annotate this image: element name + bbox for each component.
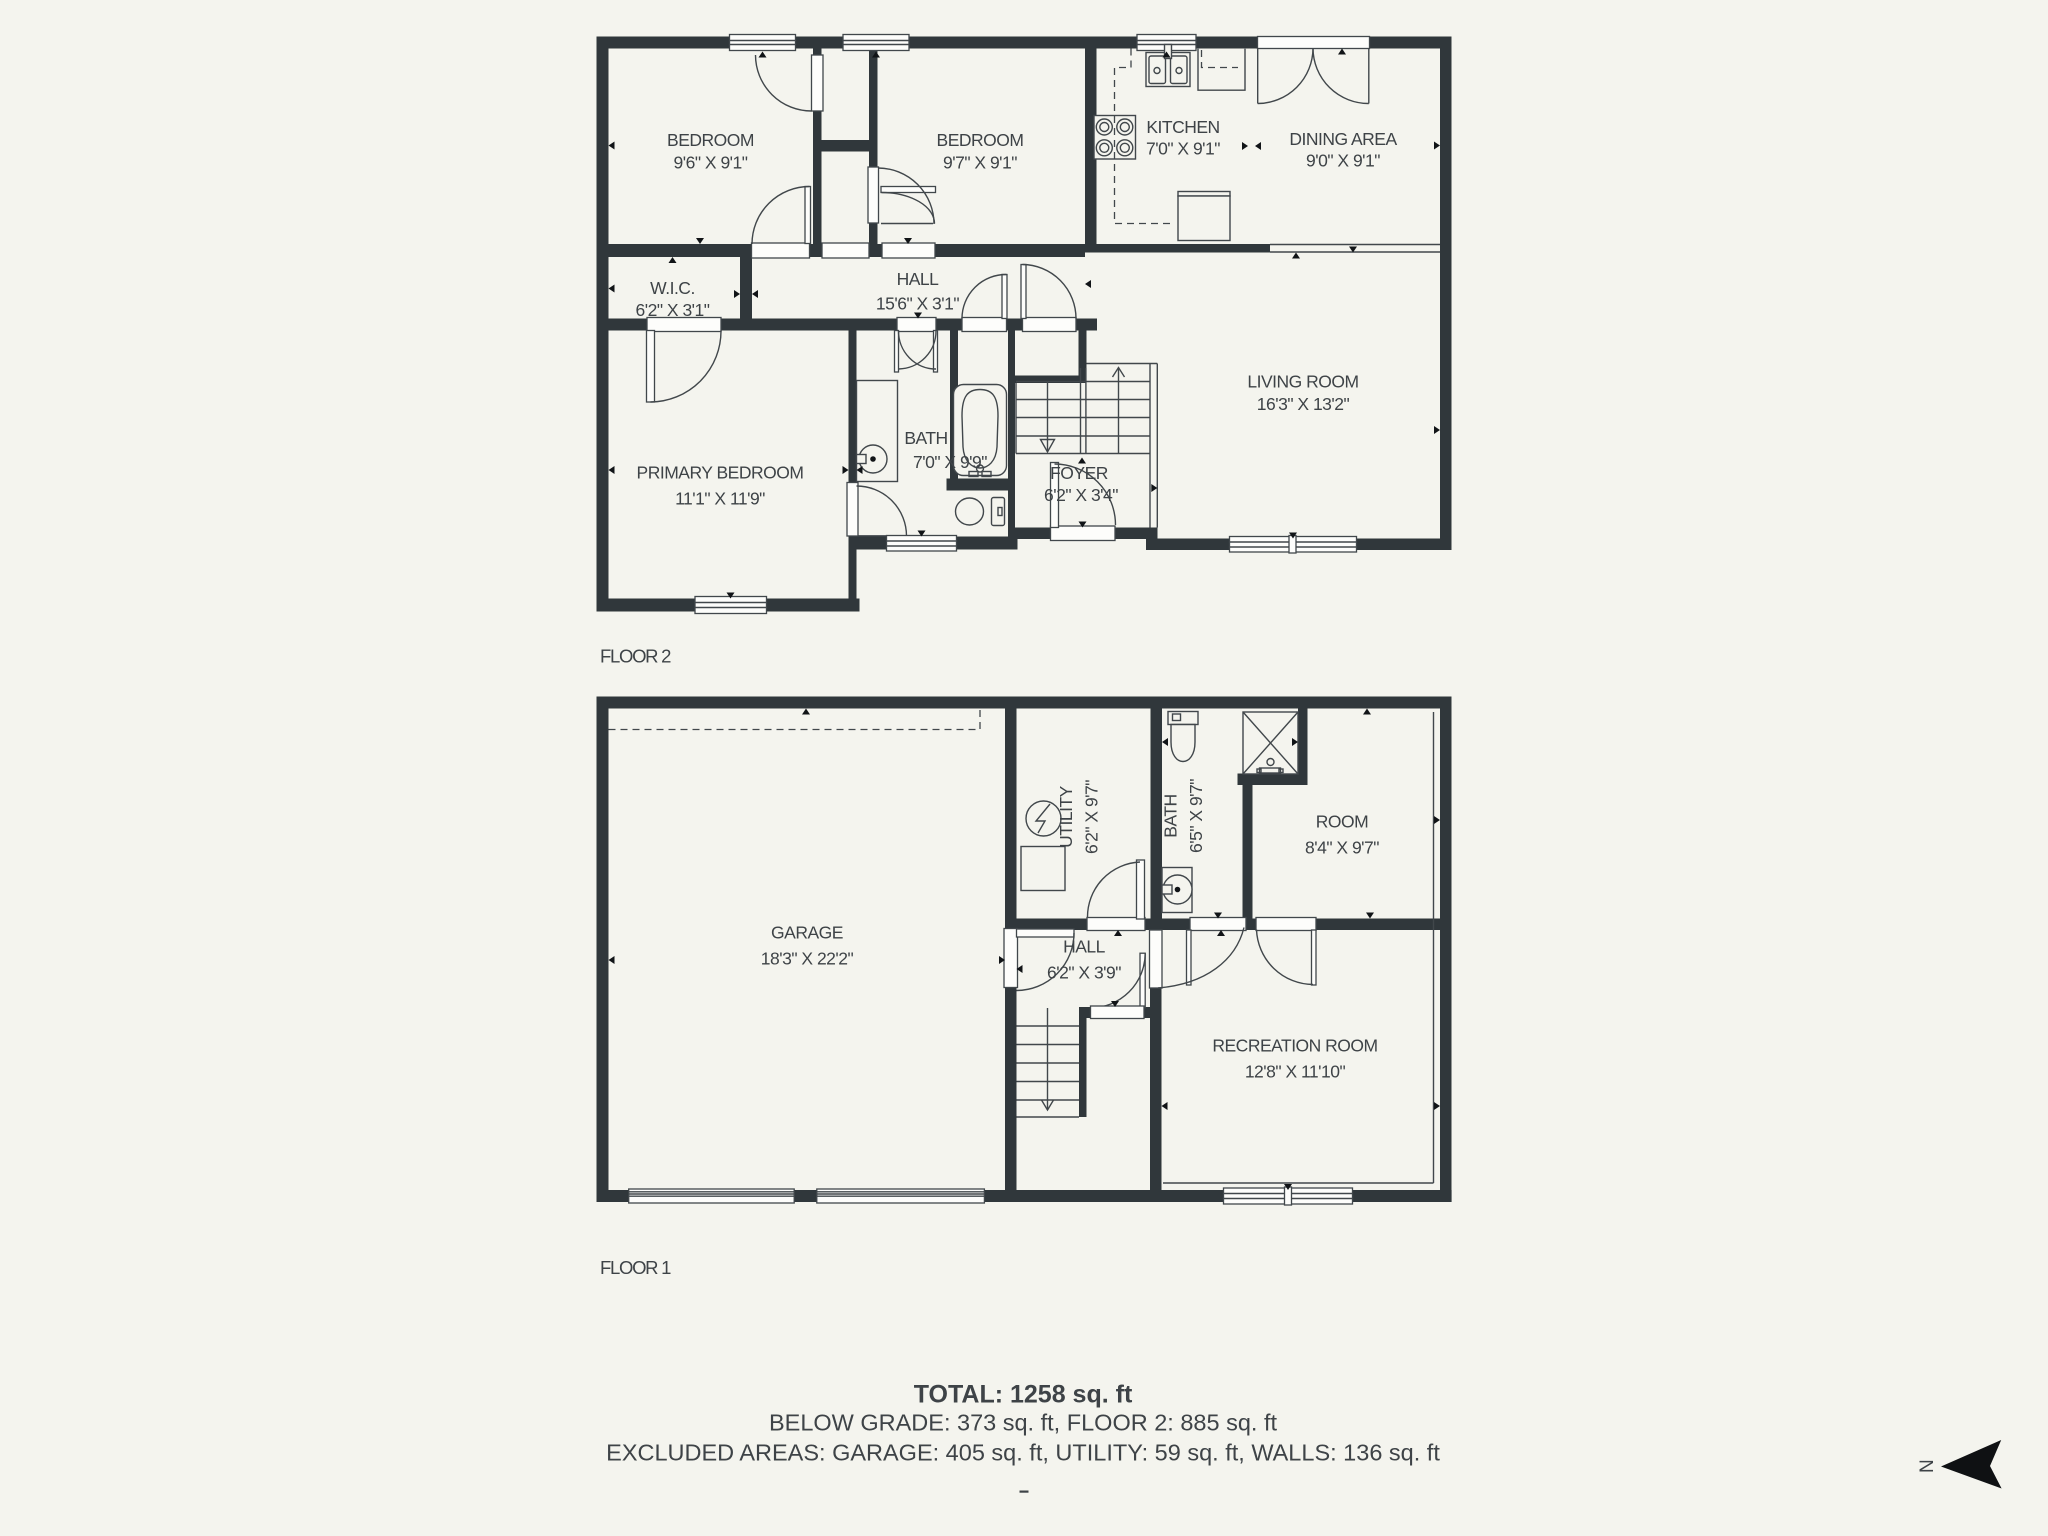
svg-text:6'2" X 3'1": 6'2" X 3'1" [636, 300, 710, 320]
svg-text:FLOOR 2: FLOOR 2 [600, 646, 671, 667]
svg-text:7'0" X 9'1": 7'0" X 9'1" [1146, 139, 1220, 159]
svg-text:12'8" X 11'10": 12'8" X 11'10" [1245, 1062, 1346, 1082]
svg-text:9'6" X 9'1": 9'6" X 9'1" [674, 153, 748, 173]
svg-text:HALL: HALL [897, 269, 940, 289]
svg-text:6'2" X 3'4": 6'2" X 3'4" [1044, 485, 1118, 505]
svg-text:KITCHEN: KITCHEN [1146, 117, 1219, 137]
svg-text:BELOW GRADE: 373 sq. ft, FLOOR: BELOW GRADE: 373 sq. ft, FLOOR 2: 885 sq… [769, 1410, 1278, 1436]
svg-text:FLOOR 1: FLOOR 1 [600, 1257, 671, 1278]
svg-text:W.I.C.: W.I.C. [650, 278, 695, 298]
svg-text:RECREATION ROOM: RECREATION ROOM [1212, 1036, 1377, 1056]
svg-text:FOYER: FOYER [1050, 463, 1108, 483]
svg-text:11'1" X 11'9": 11'1" X 11'9" [675, 489, 765, 509]
svg-text:6'2" X 3'9": 6'2" X 3'9" [1047, 963, 1121, 983]
svg-text:9'0" X 9'1": 9'0" X 9'1" [1306, 151, 1380, 171]
svg-text:UTILITY: UTILITY [1056, 785, 1076, 847]
svg-text:BEDROOM: BEDROOM [667, 130, 754, 150]
svg-text:LIVING ROOM: LIVING ROOM [1247, 372, 1358, 392]
svg-text:BATH: BATH [904, 428, 947, 448]
svg-text:N: N [1917, 1459, 1938, 1473]
svg-text:15'6" X 3'1": 15'6" X 3'1" [876, 294, 959, 314]
svg-text:GARAGE: GARAGE [771, 923, 843, 943]
svg-text:BATH: BATH [1161, 794, 1181, 837]
svg-text:6'5" X 9'7": 6'5" X 9'7" [1186, 779, 1206, 853]
svg-text:6'2" X 9'7": 6'2" X 9'7" [1082, 780, 1102, 854]
svg-text:16'3" X 13'2": 16'3" X 13'2" [1257, 394, 1350, 414]
svg-text:7'0" X 9'9": 7'0" X 9'9" [913, 452, 987, 472]
svg-text:8'4" X 9'7": 8'4" X 9'7" [1305, 838, 1379, 858]
svg-text:9'7" X 9'1": 9'7" X 9'1" [943, 153, 1017, 173]
svg-text:EXCLUDED AREAS: GARAGE: 405 sq: EXCLUDED AREAS: GARAGE: 405 sq. ft, UTIL… [606, 1440, 1440, 1466]
svg-text:DINING AREA: DINING AREA [1289, 129, 1397, 149]
svg-text:PRIMARY BEDROOM: PRIMARY BEDROOM [637, 463, 804, 483]
svg-text:HALL: HALL [1063, 937, 1106, 957]
svg-text:ROOM: ROOM [1316, 812, 1368, 832]
svg-text:BEDROOM: BEDROOM [937, 130, 1024, 150]
svg-text:TOTAL: 1258 sq. ft: TOTAL: 1258 sq. ft [914, 1381, 1133, 1409]
svg-text:18'3" X 22'2": 18'3" X 22'2" [761, 949, 854, 969]
